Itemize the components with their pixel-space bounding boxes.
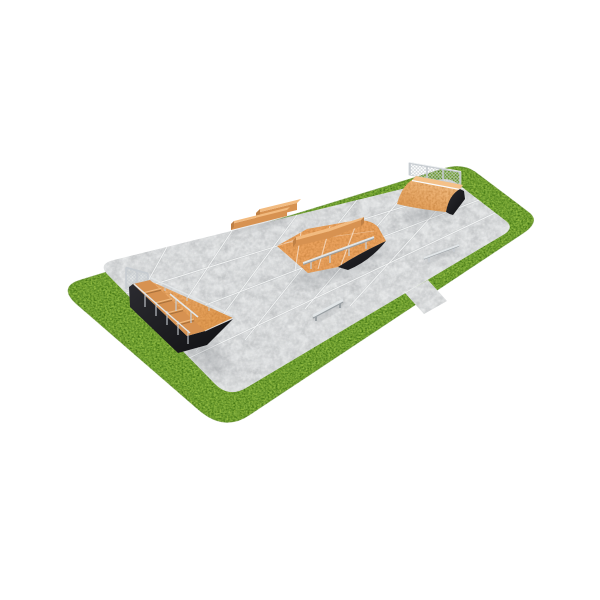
render-stage: Skatepark 3D render Isometric 3D render … bbox=[0, 0, 600, 600]
skatepark-render: Skatepark 3D render Isometric 3D render … bbox=[0, 0, 600, 600]
